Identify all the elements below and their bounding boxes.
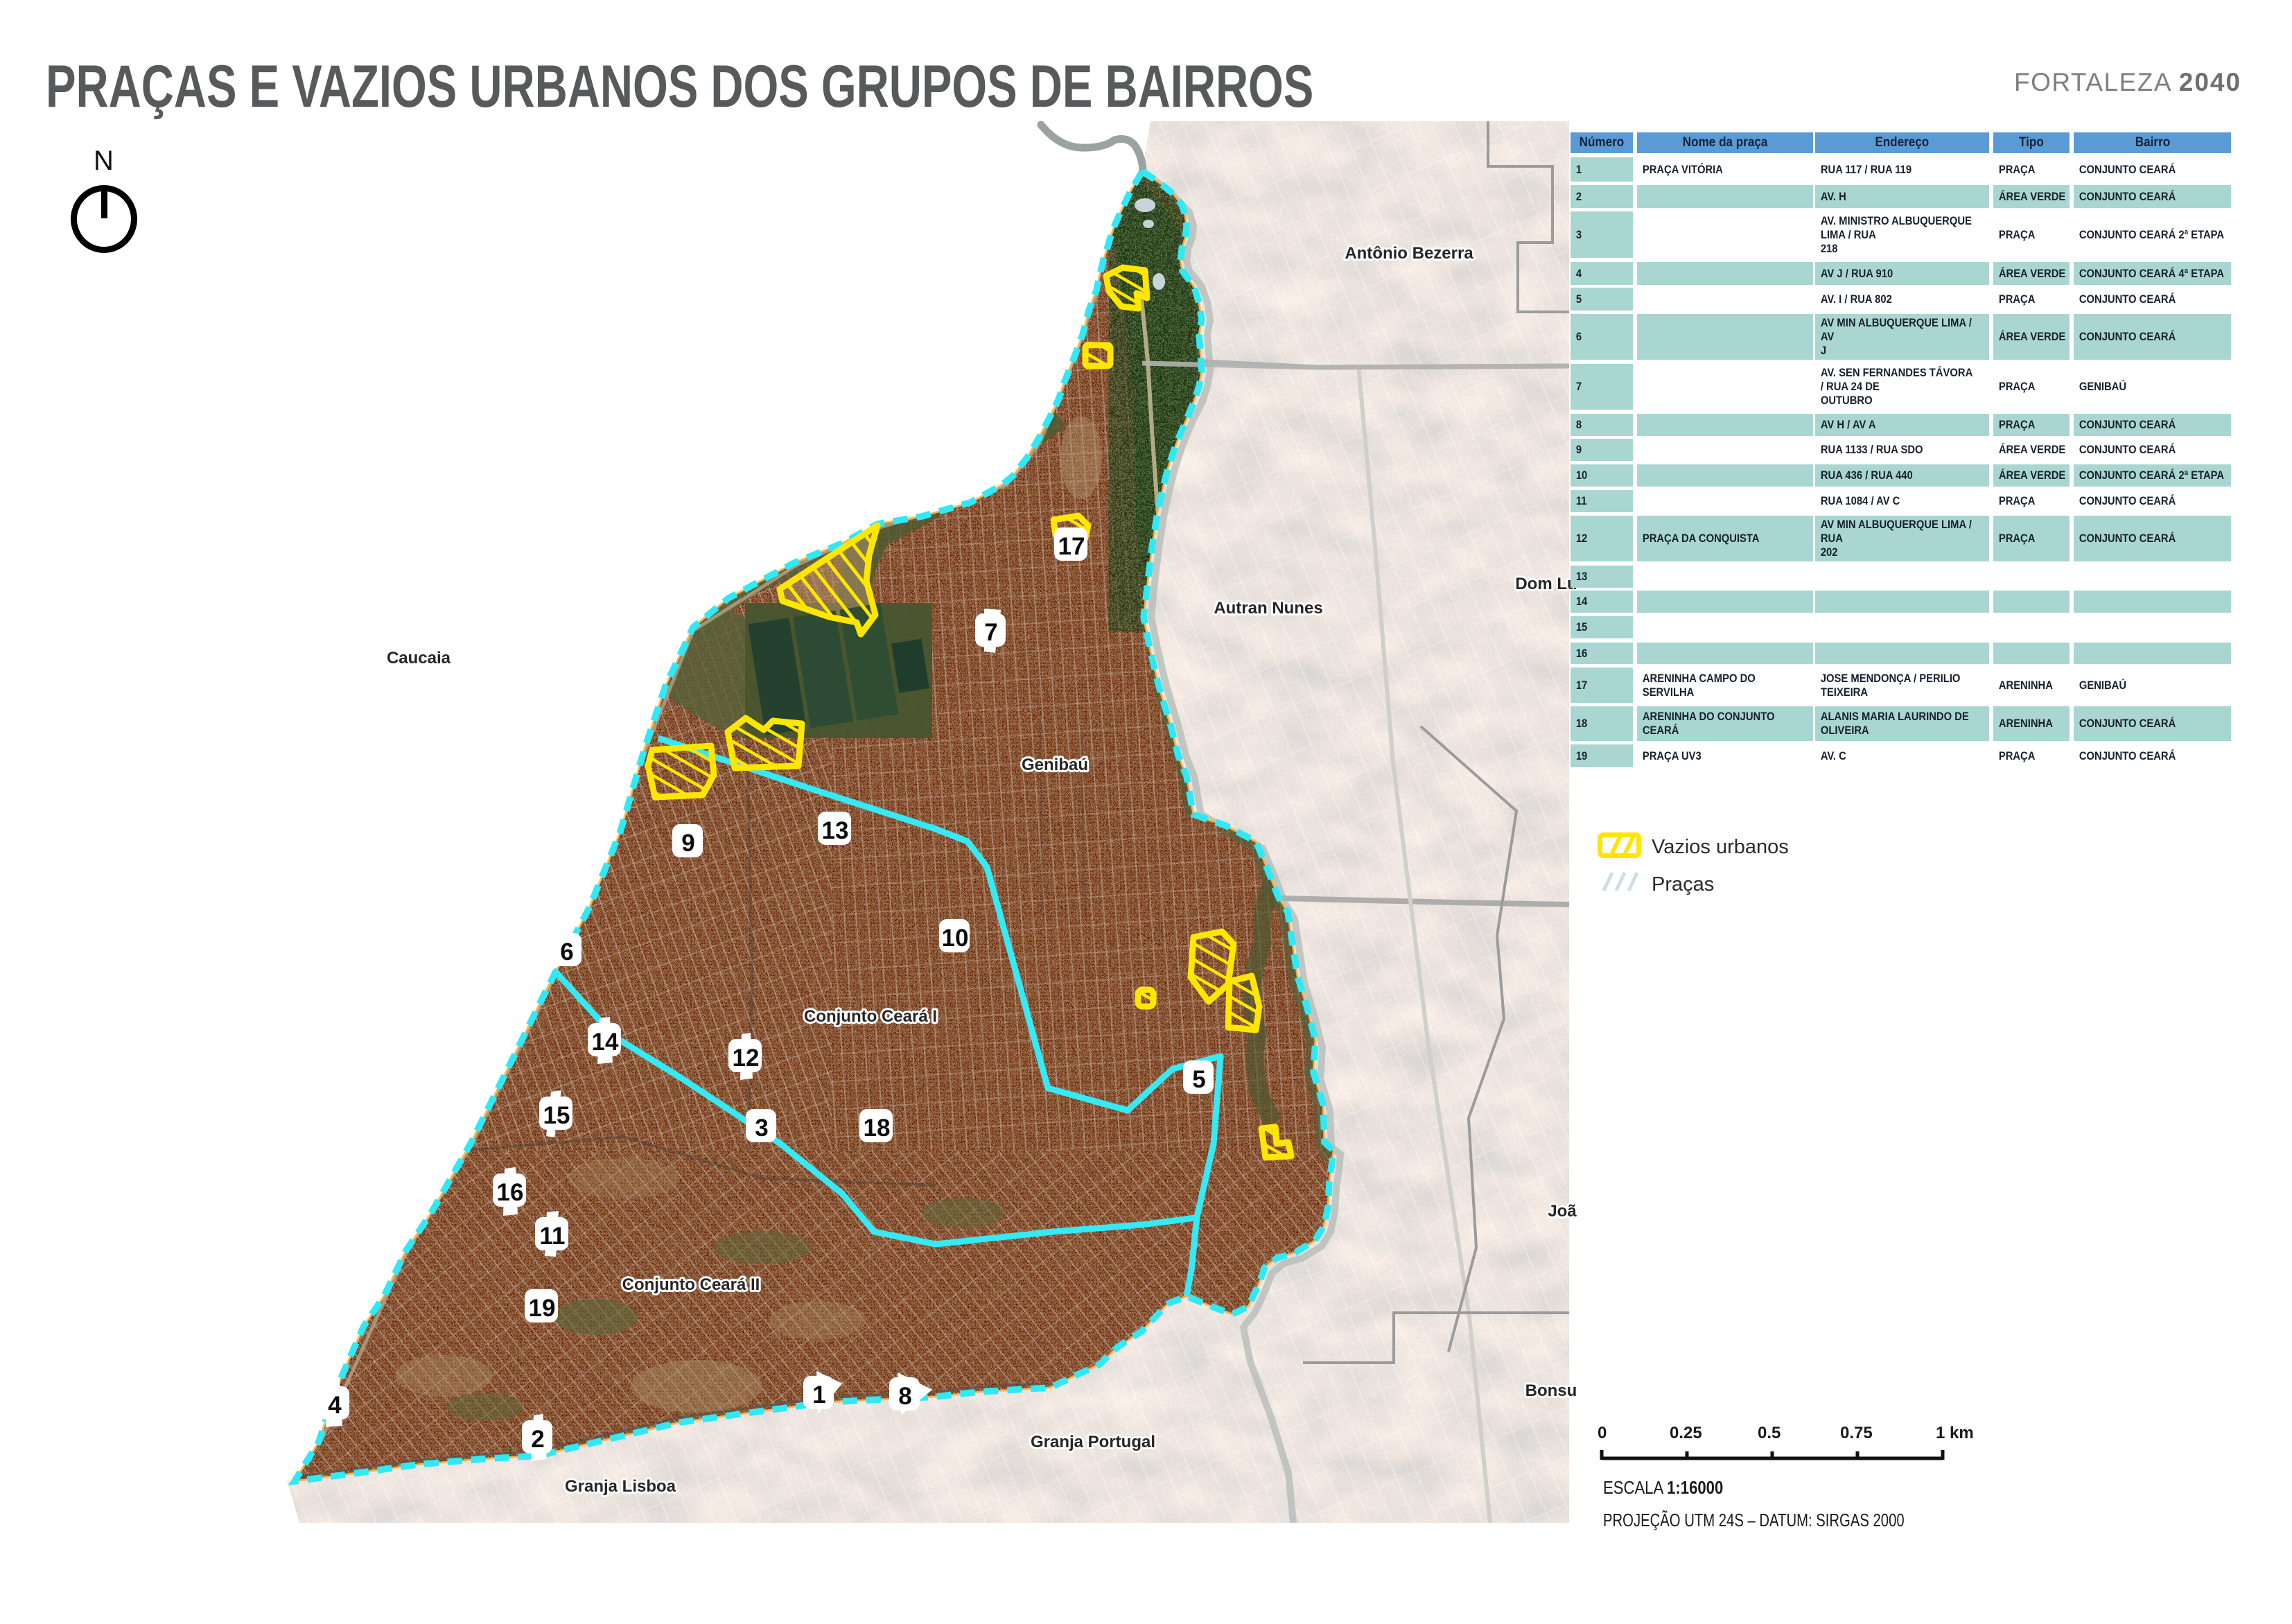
svg-text:11: 11 (540, 1223, 566, 1250)
svg-text:1: 1 (812, 1381, 825, 1408)
svg-text:Genibaú: Genibaú (1022, 756, 1088, 774)
svg-text:16: 16 (497, 1179, 524, 1206)
svg-text:18: 18 (864, 1115, 891, 1142)
svg-text:6: 6 (560, 938, 573, 966)
svg-text:3: 3 (755, 1115, 768, 1142)
svg-text:17: 17 (1058, 533, 1085, 560)
svg-text:Joã: Joã (1548, 1202, 1577, 1221)
svg-text:12: 12 (733, 1045, 760, 1072)
svg-text:4: 4 (328, 1392, 342, 1419)
svg-text:Conjunto Ceará II: Conjunto Ceará II (622, 1275, 760, 1294)
svg-text:5: 5 (1192, 1066, 1205, 1093)
svg-text:Bonsu: Bonsu (1525, 1381, 1577, 1400)
svg-text:10: 10 (942, 925, 969, 952)
svg-text:13: 13 (822, 817, 849, 844)
svg-text:14: 14 (592, 1029, 619, 1056)
svg-text:Caucaia: Caucaia (387, 649, 451, 667)
svg-text:Conjunto Ceará I: Conjunto Ceará I (804, 1007, 937, 1026)
svg-text:Granja Portugal: Granja Portugal (1031, 1433, 1155, 1451)
svg-text:15: 15 (543, 1102, 570, 1129)
svg-text:2: 2 (531, 1426, 544, 1453)
svg-text:Dom Lu: Dom Lu (1515, 575, 1577, 593)
svg-text:8: 8 (898, 1383, 911, 1410)
svg-text:19: 19 (529, 1295, 556, 1322)
svg-text:7: 7 (984, 619, 997, 646)
svg-text:Antônio Bezerra: Antônio Bezerra (1345, 244, 1473, 263)
svg-text:Granja Lisboa: Granja Lisboa (565, 1477, 676, 1496)
svg-text:Autran Nunes: Autran Nunes (1214, 599, 1322, 618)
svg-text:9: 9 (681, 830, 694, 857)
